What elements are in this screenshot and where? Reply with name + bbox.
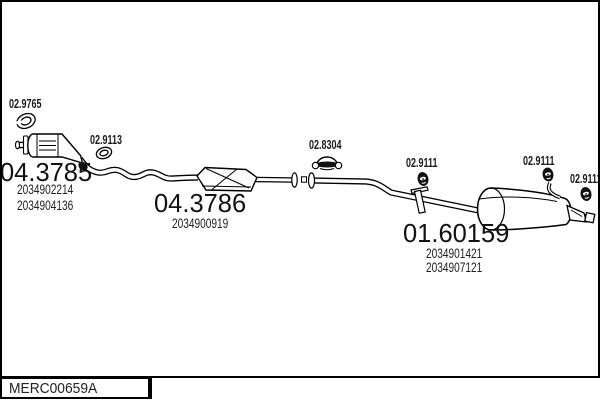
ring-icon — [95, 145, 113, 160]
oem-number: 2034900919 — [172, 217, 228, 231]
part-code-clamp: 02.8304 — [309, 139, 342, 152]
gasket-icon — [13, 111, 37, 132]
centre-silencer-drawing — [197, 168, 257, 192]
oem-number: 2034904136 — [17, 199, 73, 213]
intermediate-pipe — [256, 180, 292, 181]
exhaust-drawing — [0, 0, 600, 400]
rubber-hanger-icon-rear — [541, 167, 554, 183]
drawing-code: MERC00659A — [9, 380, 97, 397]
oem-number: 2034902214 — [17, 183, 73, 197]
rubber-hanger-icon-front — [416, 171, 429, 187]
drawing-code-box: MERC00659A — [0, 377, 152, 399]
part-code-hanger-rear: 02.9111 — [523, 155, 555, 168]
oem-number: 2034901421 — [426, 247, 482, 261]
exhaust-system-diagram: 02.9765 02.9113 04.3785 2034902214 20349… — [0, 0, 600, 400]
pipe-joint — [292, 173, 315, 188]
clamp-icon — [312, 157, 341, 170]
rubber-hanger-icon-tail — [579, 186, 592, 202]
part-code-rear-silencer: 01.60159 — [403, 222, 509, 248]
oem-number: 2034907121 — [426, 261, 482, 275]
part-code-gasket: 02.9765 — [9, 98, 42, 111]
part-code-hanger-tail: 02.9111 — [570, 173, 600, 186]
part-code-centre-silencer: 04.3786 — [154, 192, 246, 218]
front-pipe — [80, 159, 198, 179]
part-code-hanger-front: 02.9111 — [406, 157, 438, 170]
rear-pipe — [313, 181, 481, 212]
part-code-ring: 02.9113 — [90, 134, 122, 147]
